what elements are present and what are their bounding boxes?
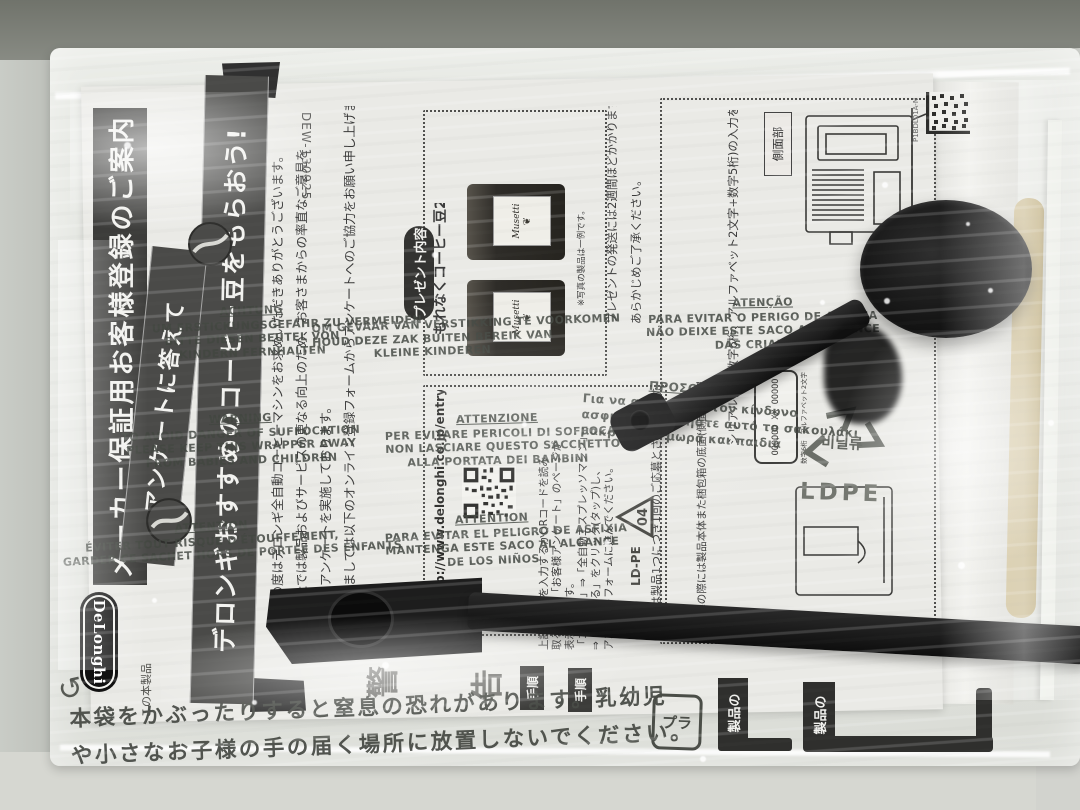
datamatrix-code [926, 92, 970, 134]
scoop-glint [988, 288, 993, 293]
coffee-bag-label: Musetti ❦ [493, 196, 551, 246]
bag-warning-nl: OM GEVAAR VAN VERSTIKKING TE VOORKOMEN H… [311, 314, 552, 363]
print-code: P1BDL01A-N [912, 84, 924, 142]
bag-glint [522, 422, 527, 427]
ldpe-text: LDPE [800, 479, 883, 508]
coffee-bag-brand: Musetti [512, 203, 522, 238]
bag-glint [820, 300, 825, 305]
present-note: ※写真の製品は一例です。 [575, 196, 589, 306]
bag-warning-en: WARNING TO AVOID DANGER OF SUFFOCATION P… [95, 407, 387, 472]
side-view-label: 側面部 [764, 114, 790, 176]
coffee-bean-icon [186, 220, 234, 268]
photo-canvas: メーカー保証用お客様登録のご案内 DEW-130925 デロンギおすすめのコーヒ… [0, 0, 1080, 810]
section-frame-bar [803, 736, 993, 752]
section-tab-text: 製品の [724, 694, 743, 733]
coffee-scoop-bowl [860, 200, 1032, 338]
bag-glint [432, 252, 438, 258]
present-caption: もれなくコーヒー豆2袋 [430, 203, 457, 335]
bag-glint [1048, 420, 1054, 426]
section-frame-bar [718, 738, 792, 751]
delonghi-logo-pill: DeLonghi [80, 592, 118, 692]
side-view-label-text: 側面部 [770, 127, 786, 162]
bag-warning-it: ATTENZIONE PER EVITARE PERICOLI DI SOFFO… [384, 409, 610, 470]
delonghi-logo: DeLonghi [80, 592, 118, 692]
bag-warning-es: ATTENTION PARA EVITAR EL PELIGRO DE ASFI… [384, 507, 601, 571]
bag-glint [958, 562, 965, 569]
bag-glint [700, 756, 706, 762]
bag-glint [152, 598, 157, 603]
present-header-text: プレゼント内容 [410, 228, 429, 319]
svg-text:비닐류: 비닐류 [821, 433, 863, 453]
bag-glint [382, 662, 389, 669]
campaign-note: プレゼントの発送には2週間ほどかかりますので、 あらかじめご了承ください。 [600, 106, 652, 324]
wreath-icon: ❦ [522, 217, 533, 225]
scoop-glint [884, 298, 890, 304]
ribbon-large-text: デロンギおすすめのコーヒー豆をもらおう! [205, 126, 254, 653]
campaign-note-line: プレゼントの発送には2週間ほどかかりますので、 [600, 106, 624, 324]
delonghi-logo-text: DeLonghi [90, 599, 108, 684]
bag-glint [252, 700, 257, 705]
bag-glint [124, 142, 131, 149]
coffee-bag-photo: Musetti ❦ [463, 176, 569, 268]
bag-glint [604, 540, 610, 546]
section-frame-bar [976, 688, 992, 750]
tool-paddle-hole [328, 590, 394, 648]
side-view-label-box: 側面部 [764, 112, 792, 176]
campaign-note-line: あらかじめご了承ください。 [624, 106, 648, 324]
scoop-glint [966, 222, 970, 226]
bag-glint [882, 182, 888, 188]
scoop-handle-hole [630, 410, 650, 430]
svg-text:04: 04 [636, 508, 651, 526]
section-tab-text: 製品の [810, 696, 829, 735]
recycle-material-text: LD-PE [629, 546, 643, 586]
